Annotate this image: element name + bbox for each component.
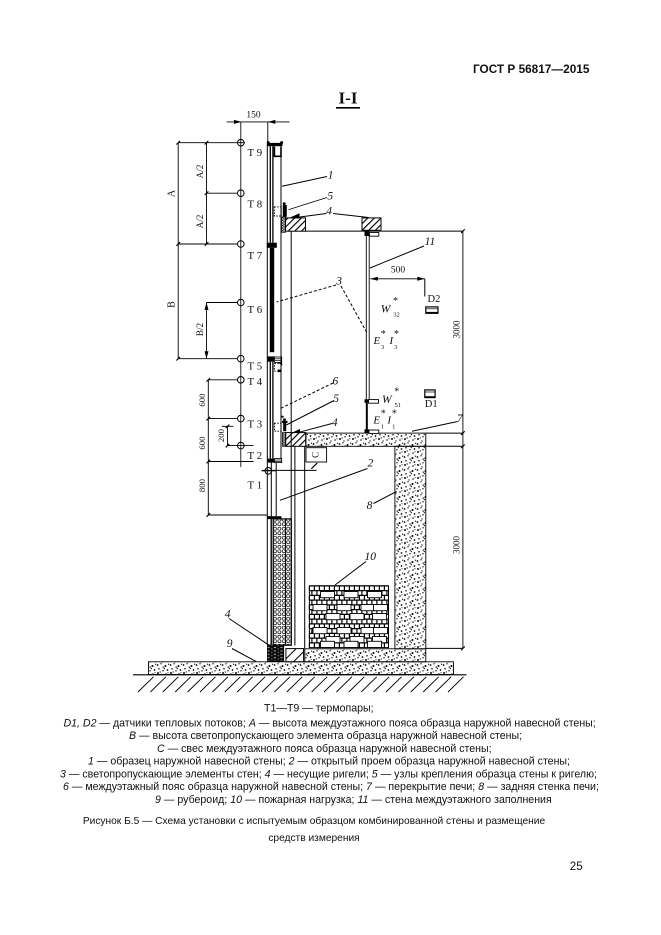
svg-text:С — свес междуэтажного пояса о: С — свес междуэтажного пояса образца нар… bbox=[157, 743, 492, 755]
svg-text:D1: D1 bbox=[425, 399, 438, 410]
svg-text:D2: D2 bbox=[428, 294, 441, 305]
svg-text:Т 7: Т 7 bbox=[248, 250, 263, 262]
svg-text:А: А bbox=[167, 189, 178, 197]
svg-text:*: * bbox=[381, 409, 386, 420]
svg-text:С: С bbox=[311, 452, 321, 458]
svg-text:1: 1 bbox=[392, 423, 395, 430]
svg-text:6: 6 bbox=[333, 376, 339, 388]
svg-text:3000: 3000 bbox=[452, 320, 462, 339]
svg-text:ГОСТ Р 56817—2015: ГОСТ Р 56817—2015 bbox=[473, 62, 590, 76]
svg-text:А/2: А/2 bbox=[195, 164, 205, 178]
svg-text:Т 8: Т 8 bbox=[248, 199, 263, 211]
svg-text:4: 4 bbox=[326, 206, 332, 218]
svg-text:3: 3 bbox=[335, 275, 342, 287]
svg-text:Т 5: Т 5 bbox=[248, 360, 263, 372]
svg-text:*: * bbox=[393, 296, 398, 307]
svg-text:Т 4: Т 4 bbox=[248, 376, 263, 388]
svg-text:1: 1 bbox=[381, 423, 384, 430]
svg-text:1: 1 bbox=[328, 170, 334, 182]
svg-text:Т1—Т9 — термопары;: Т1—Т9 — термопары; bbox=[264, 703, 374, 715]
svg-text:*: * bbox=[394, 387, 399, 398]
svg-text:3: 3 bbox=[381, 344, 384, 351]
svg-text:W: W bbox=[381, 304, 392, 316]
svg-text:1 — образец наружной навесной: 1 — образец наружной навесной стены; 2 —… bbox=[88, 756, 570, 768]
svg-text:*: * bbox=[394, 329, 399, 340]
svg-text:3000: 3000 bbox=[452, 536, 462, 555]
svg-text:*: * bbox=[381, 329, 386, 340]
svg-text:32: 32 bbox=[393, 312, 400, 319]
svg-text:В: В bbox=[167, 301, 178, 308]
svg-text:200: 200 bbox=[216, 428, 226, 442]
svg-text:3 — светопропускающие элементы: 3 — светопропускающие элементы стен; 4 —… bbox=[60, 768, 597, 780]
svg-text:6 — междуэтажный пояс образца: 6 — междуэтажный пояс образца наружной н… bbox=[63, 781, 599, 793]
svg-text:средств измерения: средств измерения bbox=[268, 833, 359, 844]
svg-text:10: 10 bbox=[365, 551, 377, 563]
svg-text:Т 2: Т 2 bbox=[248, 450, 263, 462]
svg-text:*: * bbox=[392, 409, 397, 420]
svg-text:11: 11 bbox=[425, 236, 436, 248]
svg-text:800: 800 bbox=[197, 478, 207, 492]
svg-text:9: 9 bbox=[227, 638, 233, 650]
svg-text:9 — рубероид; 10 — пожарная на: 9 — рубероид; 10 — пожарная нагрузка; 11… bbox=[155, 794, 552, 806]
svg-text:150: 150 bbox=[246, 111, 261, 121]
svg-text:В/2: В/2 bbox=[195, 322, 205, 336]
svg-text:5: 5 bbox=[327, 190, 333, 202]
svg-text:3: 3 bbox=[394, 344, 397, 351]
svg-text:А/2: А/2 bbox=[195, 214, 205, 228]
svg-text:W: W bbox=[382, 394, 393, 406]
svg-text:600: 600 bbox=[197, 393, 207, 407]
svg-text:Т 3: Т 3 bbox=[248, 419, 263, 431]
svg-text:Е: Е bbox=[373, 335, 381, 347]
svg-text:D1, D2 — датчики тепловых пото: D1, D2 — датчики тепловых потоков; А — в… bbox=[64, 717, 596, 729]
svg-text:2: 2 bbox=[368, 457, 374, 469]
svg-text:I-I: I-I bbox=[339, 89, 358, 108]
svg-text:В — высота светопропускающего: В — высота светопропускающего элемента о… bbox=[129, 730, 522, 742]
svg-text:500: 500 bbox=[391, 265, 406, 275]
svg-text:600: 600 bbox=[197, 436, 207, 450]
svg-text:Е: Е bbox=[372, 415, 380, 427]
svg-text:8: 8 bbox=[367, 500, 373, 512]
svg-text:Т 9: Т 9 bbox=[248, 147, 263, 159]
svg-text:Т 6: Т 6 bbox=[248, 304, 263, 316]
svg-text:Рисунок Б.5 — Схема установки: Рисунок Б.5 — Схема установки с испытуем… bbox=[83, 815, 546, 827]
svg-text:Т 1: Т 1 bbox=[248, 479, 263, 491]
svg-text:4: 4 bbox=[332, 417, 338, 429]
svg-text:25: 25 bbox=[570, 861, 583, 873]
svg-text:5: 5 bbox=[333, 393, 339, 405]
